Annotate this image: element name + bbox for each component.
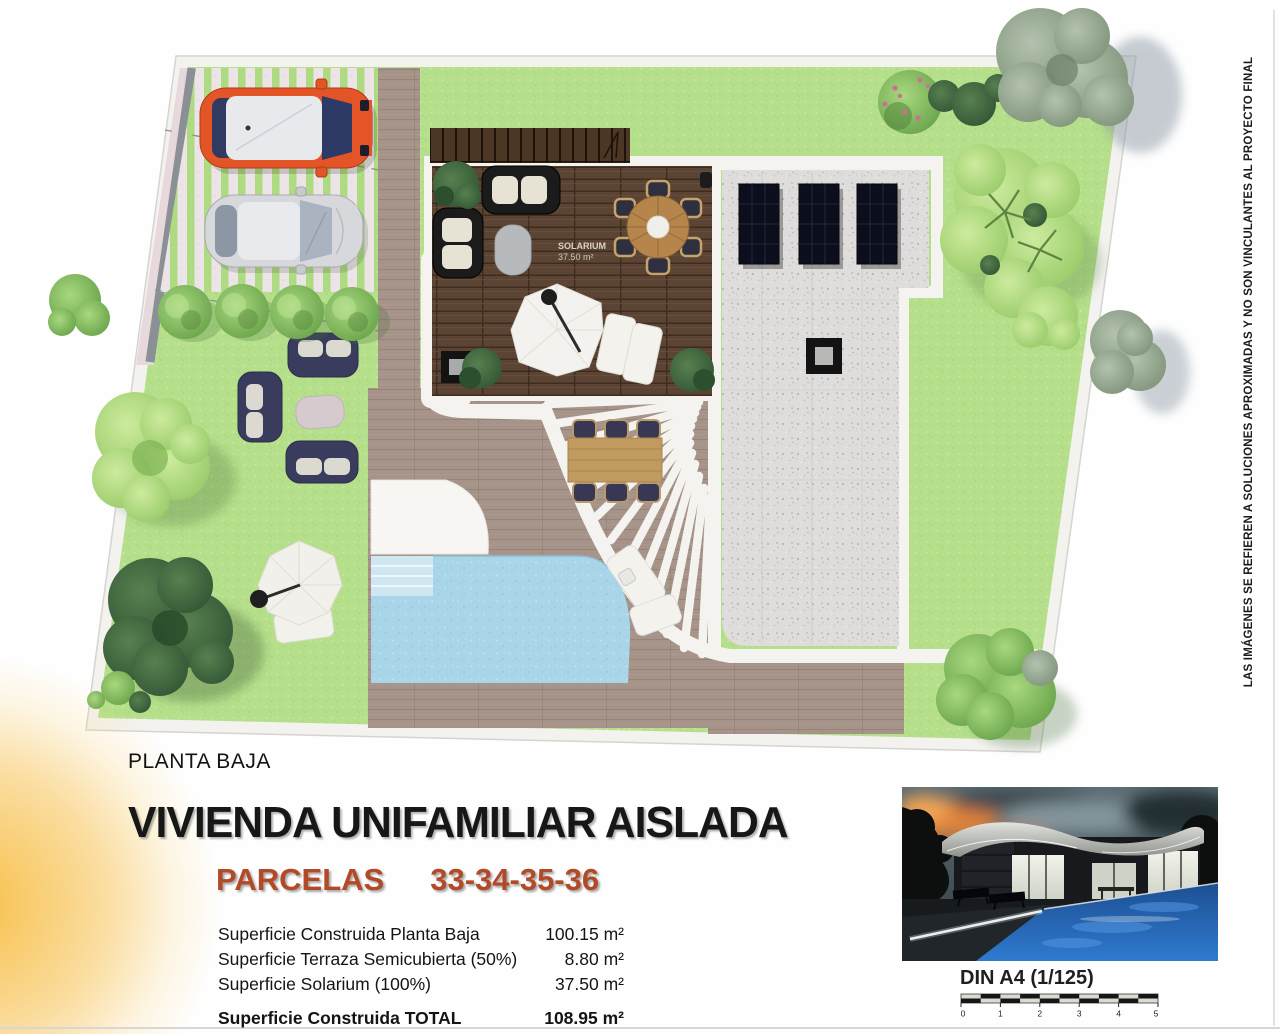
svg-text:1: 1: [998, 1009, 1003, 1019]
lawn-sofa-left: [238, 372, 282, 442]
deck-rug: [495, 225, 531, 275]
parcels-numbers: 33-34-35-36: [430, 862, 599, 898]
area-total-label: Superficie Construida TOTAL: [218, 1006, 461, 1031]
info-block: PLANTA BAJA VIVIENDA UNIFAMILIAR AISLADA…: [128, 750, 688, 1031]
deck-sofa-vertical: [433, 208, 483, 278]
photo-block: DIN A4 (1/125) 0 1: [902, 787, 1232, 961]
area-row: Superficie Terraza Semicubierta (50%) 8.…: [218, 947, 624, 972]
villa-night-render: [902, 787, 1218, 961]
svg-text:2: 2: [1037, 1009, 1042, 1019]
solar-panels: [739, 184, 901, 269]
lawn-ottoman: [295, 394, 345, 429]
deck-sofa-horizontal: [482, 166, 560, 214]
page-right-border: [1273, 10, 1275, 1026]
area-value: 8.80 m²: [565, 947, 624, 972]
silver-car: [205, 187, 368, 274]
area-value: 37.50 m²: [555, 972, 624, 997]
area-row: Superficie Solarium (100%) 37.50 m²: [218, 972, 624, 997]
svg-text:3: 3: [1077, 1009, 1082, 1019]
svg-text:4: 4: [1116, 1009, 1121, 1019]
area-label: Superficie Solarium (100%): [218, 972, 431, 997]
left-edge-tree: [48, 274, 110, 336]
svg-text:37.50 m²: 37.50 m²: [558, 252, 594, 262]
parcels-label: PARCELAS: [216, 862, 384, 898]
scale-bar: 0 1 2 3 4 5: [960, 991, 1164, 1019]
roof-skylight: [806, 338, 842, 374]
svg-text:0: 0: [961, 1009, 966, 1019]
area-label: Superficie Terraza Semicubierta (50%): [218, 947, 517, 972]
photo-caption: DIN A4 (1/125): [960, 967, 1094, 990]
area-row: Superficie Construida Planta Baja 100.15…: [218, 922, 624, 947]
parcels-line: PARCELAS 33-34-35-36: [216, 862, 688, 898]
lawn-sofa-bottom: [286, 441, 358, 483]
floor-label: PLANTA BAJA: [128, 750, 688, 774]
site-plan-drawing: SOLARIUM 37.50 m²: [0, 0, 1280, 762]
page-title: VIVIENDA UNIFAMILIAR AISLADA: [128, 798, 671, 848]
disclaimer-vertical-text: LAS IMÁGENES SE REFIEREN A SOLUCIONES AP…: [1243, 57, 1255, 687]
terrace-dining-set: [568, 420, 662, 502]
orange-suv: [200, 79, 377, 177]
gravel-roof-area: [722, 170, 929, 646]
area-label: Superficie Construida Planta Baja: [218, 922, 480, 947]
plan-sheet-page: SOLARIUM 37.50 m² LAS IMÁGENES SE REFIER…: [0, 0, 1280, 1034]
svg-text:5: 5: [1154, 1009, 1159, 1019]
svg-text:SOLARIUM: SOLARIUM: [558, 241, 606, 251]
areas-table: Superficie Construida Planta Baja 100.15…: [218, 922, 624, 1031]
area-total-row: Superficie Construida TOTAL 108.95 m²: [218, 1006, 624, 1031]
area-total-value: 108.95 m²: [544, 1006, 624, 1031]
area-value: 100.15 m²: [545, 922, 624, 947]
gray-tree-right-edge: [1090, 310, 1190, 414]
